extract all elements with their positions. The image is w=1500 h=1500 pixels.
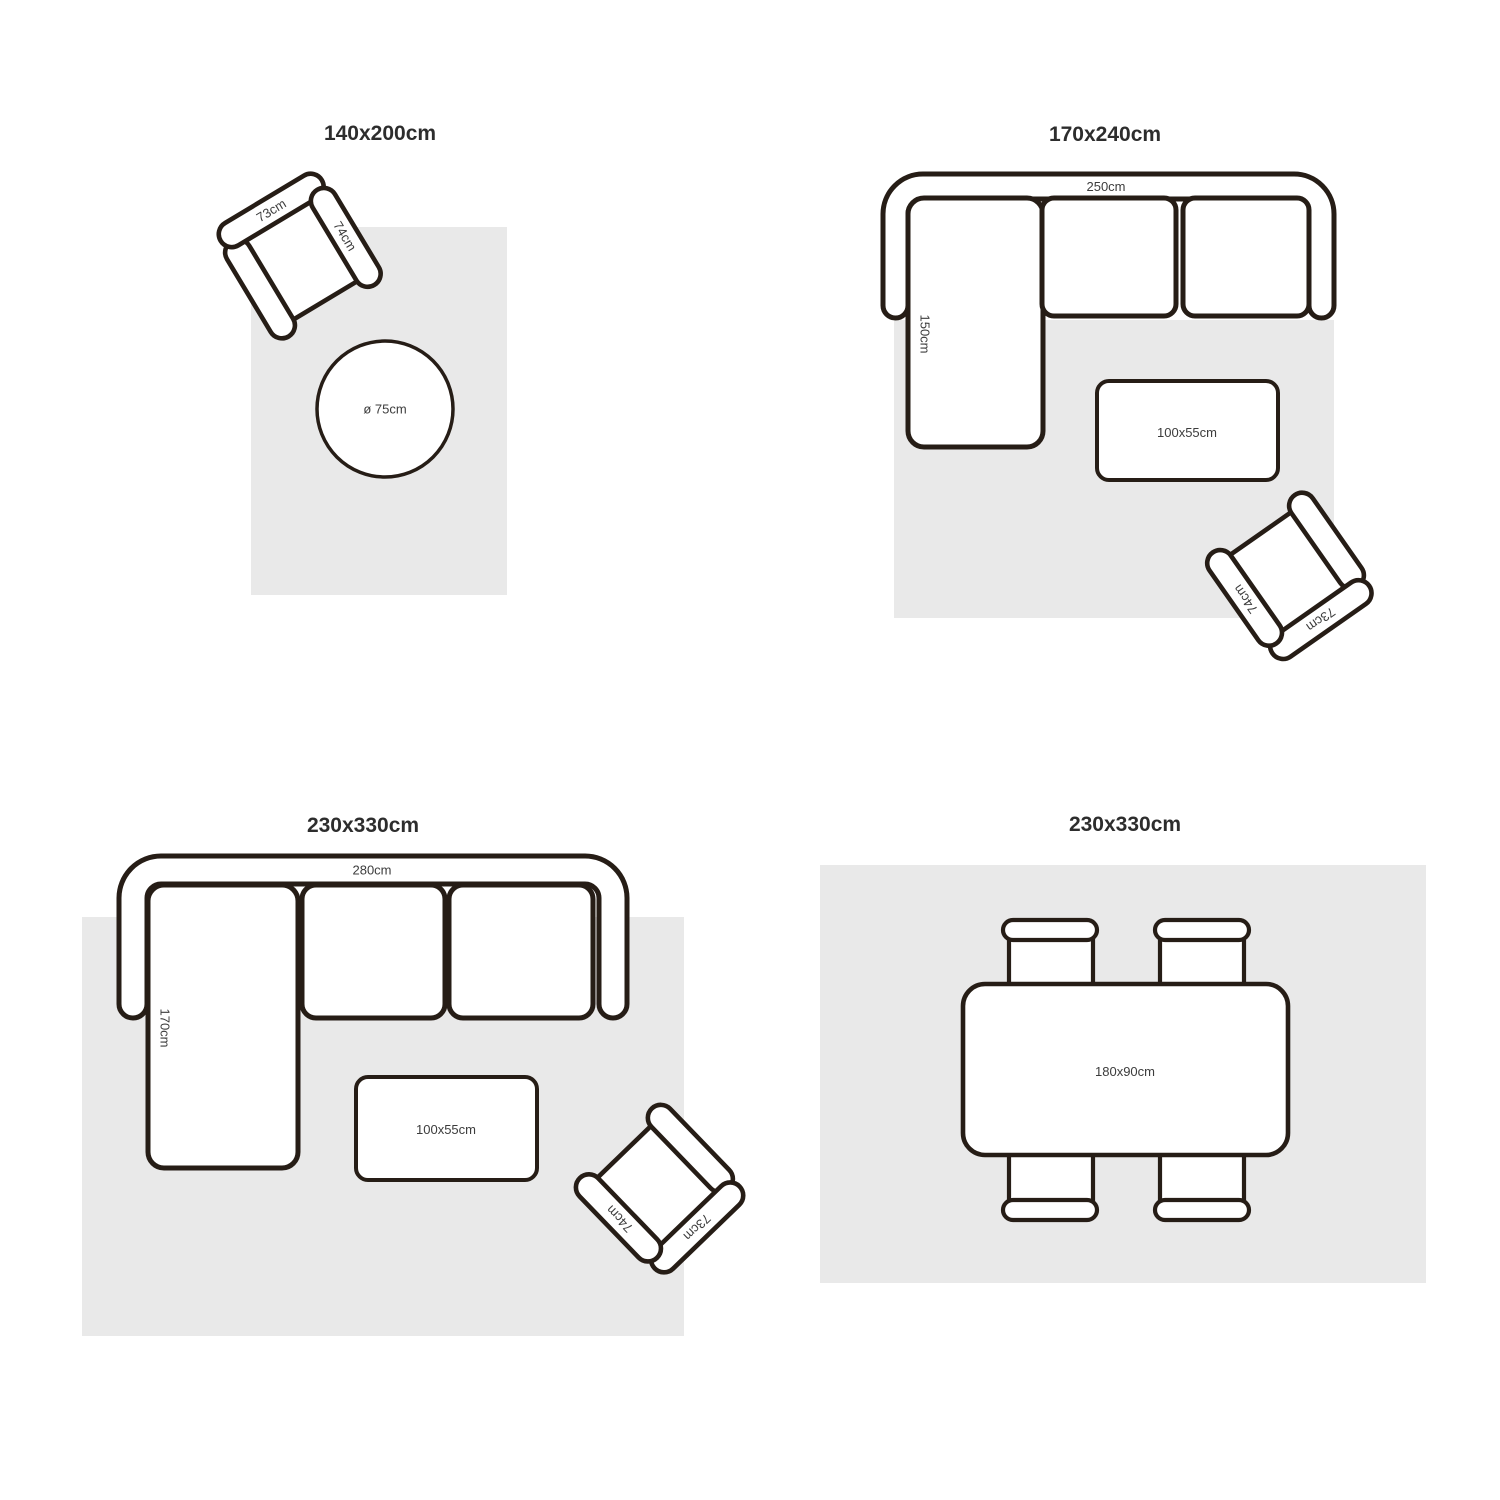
svg-text:180x90cm: 180x90cm (1095, 1064, 1155, 1079)
svg-text:170cm: 170cm (158, 1008, 173, 1047)
svg-text:280cm: 280cm (352, 863, 391, 878)
svg-text:100x55cm: 100x55cm (416, 1122, 476, 1137)
svg-text:140x200cm: 140x200cm (324, 122, 436, 145)
svg-text:170x240cm: 170x240cm (1049, 123, 1161, 146)
svg-text:230x330cm: 230x330cm (307, 814, 419, 837)
svg-text:250cm: 250cm (1086, 179, 1125, 194)
svg-text:230x330cm: 230x330cm (1069, 813, 1181, 836)
svg-text:100x55cm: 100x55cm (1157, 425, 1217, 440)
svg-text:ø 75cm: ø 75cm (363, 402, 406, 417)
svg-text:150cm: 150cm (918, 314, 933, 353)
